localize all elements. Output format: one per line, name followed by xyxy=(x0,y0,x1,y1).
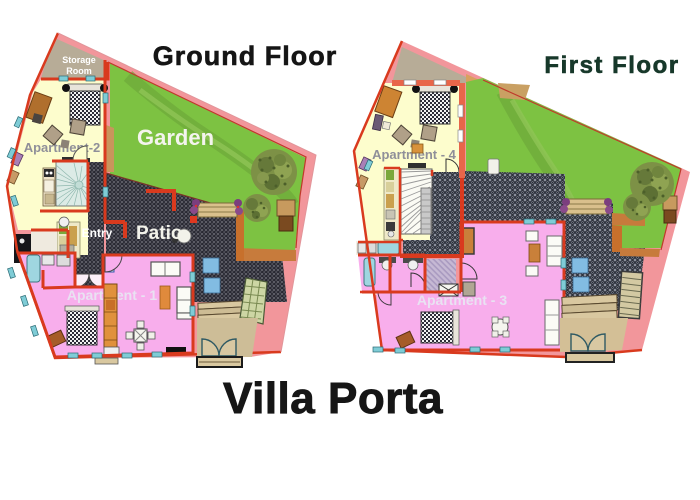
svg-text:Patio: Patio xyxy=(136,223,182,244)
svg-text:Garden: Garden xyxy=(137,125,214,150)
svg-text:Villa Porta: Villa Porta xyxy=(223,374,443,423)
svg-text:Storage: Storage xyxy=(62,55,96,65)
svg-text:Apartment - 3: Apartment - 3 xyxy=(417,292,507,308)
svg-text:Ground Floor: Ground Floor xyxy=(153,41,337,71)
svg-text:Entry: Entry xyxy=(82,226,113,240)
svg-text:First Floor: First Floor xyxy=(544,52,679,79)
svg-text:Room: Room xyxy=(66,66,92,76)
